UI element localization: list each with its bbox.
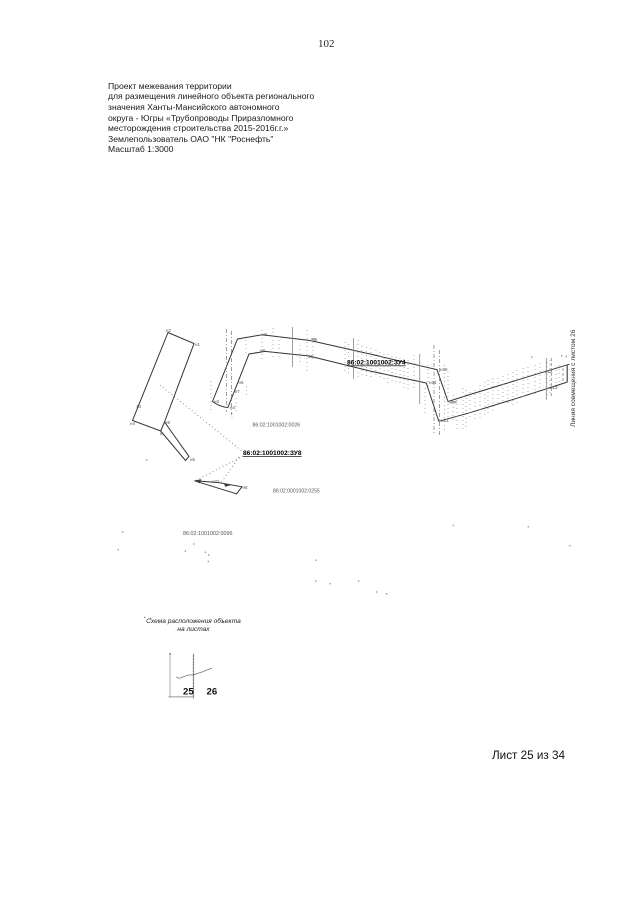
svg-text:н4: н4 [130,421,135,426]
svg-text:26: 26 [207,686,218,697]
svg-text:25: 25 [183,686,194,697]
svg-text:н24: н24 [429,380,437,385]
svg-text:86:02:1001002:ЗУ4: 86:02:1001002:ЗУ4 [347,360,406,367]
svg-text:н7: н7 [235,389,240,394]
svg-text:н22: н22 [212,479,220,484]
svg-text:10: 10 [136,404,142,409]
svg-text:86:02:1001002:0096: 86:02:1001002:0096 [183,531,232,537]
svg-text:19: 19 [308,354,314,359]
svg-text:н23: н23 [441,418,449,423]
svg-text:н8: н8 [260,348,265,353]
svg-text:н2: н2 [166,328,171,333]
svg-text:н9: н9 [262,332,267,337]
svg-text:н26: н26 [440,367,448,372]
svg-text:н8: н8 [243,485,248,490]
svg-text:н9: н9 [165,420,170,425]
svg-text:н4: н4 [230,405,235,410]
svg-text:Линия совмещения с листом 26: Линия совмещения с листом 26 [570,329,577,427]
svg-text:н12: н12 [545,369,553,374]
svg-text:н13: н13 [550,385,558,390]
svg-text:86:02:1001002:0026: 86:02:1001002:0026 [253,423,301,429]
svg-text:86:02:1001002:ЗУ8: 86:02:1001002:ЗУ8 [243,450,302,457]
svg-text:н1: н1 [195,342,200,347]
svg-text:н6: н6 [239,380,244,385]
svg-text:н5: н5 [190,457,195,462]
svg-text:86:02:0001002:0255: 86:02:0001002:0255 [273,489,320,495]
svg-text:н3: н3 [214,399,219,404]
